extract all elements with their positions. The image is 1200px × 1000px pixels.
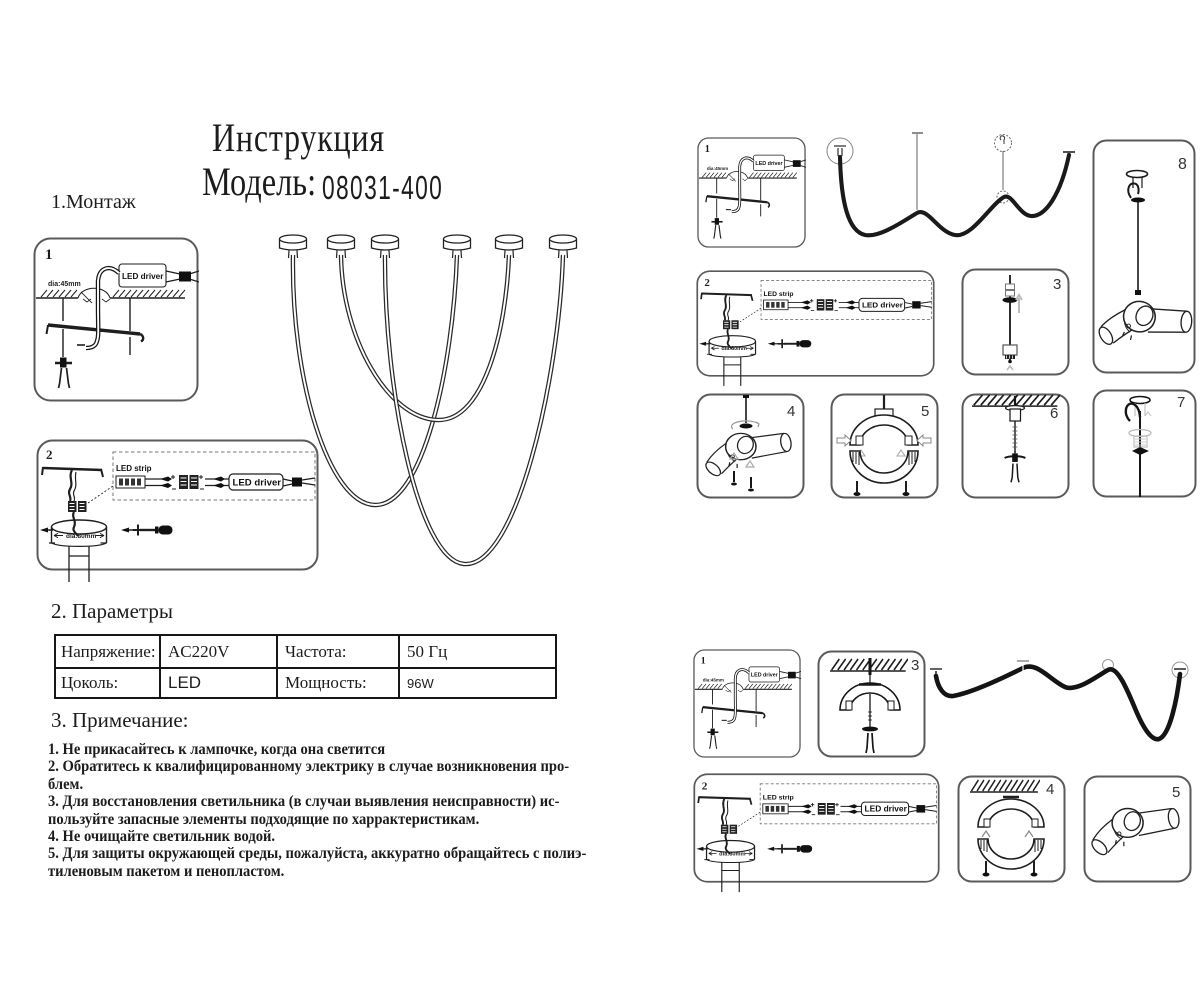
svg-text:4: 4 [787,403,795,420]
svg-text:6: 6 [1050,405,1058,422]
svg-text:8: 8 [1178,156,1187,173]
svg-text:3: 3 [1053,276,1061,293]
svg-text:3: 3 [911,657,919,674]
svg-text:5: 5 [1172,784,1180,801]
svg-text:7: 7 [1177,394,1185,411]
svg-text:5: 5 [921,403,929,420]
svg-text:4: 4 [1046,781,1054,798]
